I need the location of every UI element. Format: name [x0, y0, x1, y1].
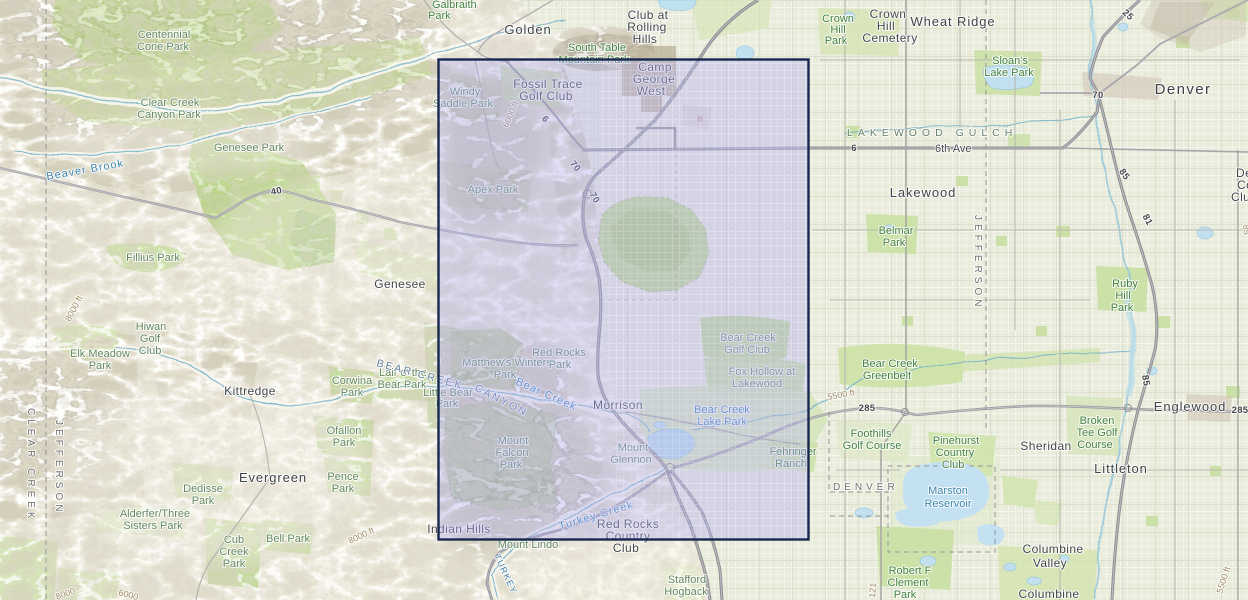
svg-text:Ofallon: Ofallon: [327, 425, 362, 437]
svg-text:Wheat Ridge: Wheat Ridge: [910, 14, 995, 29]
svg-text:Park: Park: [883, 237, 906, 249]
svg-text:Greenbelt: Greenbelt: [863, 370, 911, 382]
svg-text:JEFFERSON: JEFFERSON: [972, 215, 983, 310]
svg-text:Hiwan: Hiwan: [136, 321, 167, 333]
svg-text:Park: Park: [333, 437, 356, 449]
svg-text:Clement: Clement: [888, 577, 929, 589]
svg-text:CLEAR CREEK: CLEAR CREEK: [25, 408, 36, 523]
svg-text:Lake Park: Lake Park: [984, 67, 1034, 79]
svg-text:285: 285: [859, 403, 876, 414]
svg-text:Littleton: Littleton: [1094, 461, 1148, 476]
svg-text:Pence: Pence: [327, 471, 358, 483]
svg-text:Park: Park: [341, 387, 364, 399]
svg-text:Golf: Golf: [140, 333, 161, 345]
svg-text:Pinehurst: Pinehurst: [933, 435, 979, 447]
svg-text:Evergreen: Evergreen: [239, 470, 307, 485]
svg-text:Country: Country: [936, 447, 975, 459]
svg-text:Alderfer/Three: Alderfer/Three: [120, 508, 190, 520]
svg-text:Club: Club: [613, 541, 639, 555]
svg-text:Sisters Park: Sisters Park: [123, 520, 183, 532]
svg-text:Kittredge: Kittredge: [224, 384, 276, 398]
svg-text:70: 70: [1092, 90, 1103, 101]
svg-text:Hogback: Hogback: [664, 586, 708, 598]
svg-text:Clear Creek: Clear Creek: [141, 97, 200, 109]
svg-text:Tee Golf: Tee Golf: [1077, 427, 1119, 439]
svg-text:Lakewood: Lakewood: [890, 185, 956, 200]
svg-text:Bear Park: Bear Park: [378, 379, 427, 391]
svg-text:Sheridan: Sheridan: [1020, 439, 1071, 453]
svg-text:Park: Park: [223, 558, 246, 570]
svg-text:Club: Club: [1231, 190, 1248, 204]
svg-text:Ruby: Ruby: [1112, 278, 1138, 290]
svg-text:Elk Meadow: Elk Meadow: [70, 348, 130, 360]
svg-text:Sloan's: Sloan's: [992, 55, 1028, 67]
svg-text:Cub: Cub: [224, 534, 244, 546]
svg-text:Park: Park: [428, 10, 451, 22]
svg-text:Bear Creek: Bear Creek: [862, 358, 918, 370]
svg-text:Park: Park: [89, 360, 112, 372]
svg-text:Park: Park: [192, 495, 215, 507]
svg-text:Cemetery: Cemetery: [862, 31, 917, 45]
svg-text:Cone Park: Cone Park: [137, 41, 189, 53]
svg-text:Belmar: Belmar: [879, 225, 914, 237]
svg-text:Genesee Park: Genesee Park: [214, 142, 285, 154]
svg-text:Club: Club: [942, 459, 965, 471]
svg-text:South Table: South Table: [568, 42, 626, 54]
svg-text:JEFFERSON: JEFFERSON: [53, 420, 64, 515]
svg-text:Valley: Valley: [1033, 556, 1067, 570]
svg-text:85: 85: [1139, 374, 1152, 387]
svg-text:Centennial: Centennial: [138, 29, 191, 41]
svg-text:Corwina: Corwina: [332, 375, 373, 387]
svg-text:Reservoir: Reservoir: [924, 498, 971, 510]
svg-text:Dedisse: Dedisse: [183, 483, 223, 495]
svg-text:40: 40: [270, 185, 283, 198]
svg-text:Fillius Park: Fillius Park: [126, 252, 180, 264]
svg-text:Golden: Golden: [504, 22, 551, 37]
svg-text:Denver: Denver: [1155, 81, 1212, 98]
svg-text:Park: Park: [1111, 302, 1134, 314]
svg-text:6th Ave: 6th Ave: [935, 143, 972, 155]
svg-text:Columbine: Columbine: [1023, 542, 1084, 556]
svg-text:LAKEWOOD GULCH: LAKEWOOD GULCH: [847, 127, 1017, 139]
svg-text:Creek: Creek: [219, 546, 249, 558]
svg-text:Englewood: Englewood: [1154, 399, 1226, 414]
svg-text:Canyon Park: Canyon Park: [137, 109, 201, 121]
svg-text:Stafford: Stafford: [668, 574, 706, 586]
svg-text:Course: Course: [1077, 439, 1112, 451]
svg-text:Marston: Marston: [928, 485, 968, 497]
svg-text:Bell Park: Bell Park: [266, 533, 311, 545]
svg-text:Genesee: Genesee: [374, 277, 426, 291]
svg-text:Hill: Hill: [1115, 290, 1130, 302]
svg-text:85: 85: [1241, 224, 1248, 235]
svg-text:Park: Park: [894, 589, 917, 600]
svg-text:6: 6: [851, 143, 857, 154]
svg-text:Hills: Hills: [633, 32, 658, 46]
svg-text:Columbine: Columbine: [1019, 587, 1080, 600]
svg-text:Club: Club: [139, 345, 162, 357]
svg-text:Robert F: Robert F: [889, 565, 932, 577]
svg-text:285: 285: [1232, 405, 1248, 416]
svg-text:Golf Course: Golf Course: [843, 440, 902, 452]
svg-text:Foothills: Foothills: [851, 428, 892, 440]
svg-text:DENVER: DENVER: [833, 482, 899, 493]
svg-text:121: 121: [867, 582, 878, 598]
svg-text:Park: Park: [825, 35, 848, 47]
svg-text:Broken: Broken: [1080, 415, 1115, 427]
svg-text:Park: Park: [332, 483, 355, 495]
svg-text:Mount Lindo: Mount Lindo: [498, 539, 559, 551]
